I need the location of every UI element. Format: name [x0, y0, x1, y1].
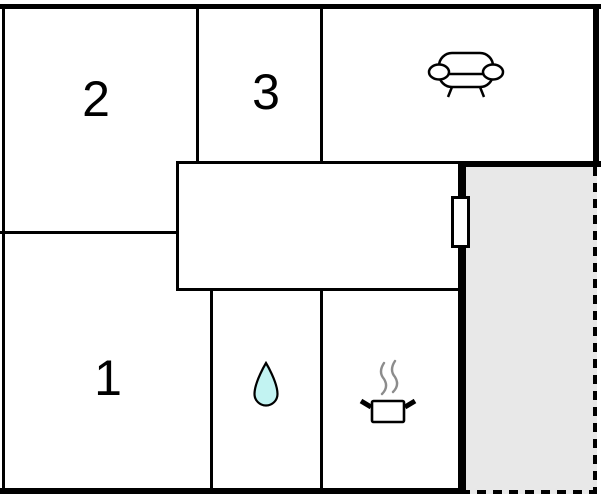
steam-line	[392, 361, 397, 392]
water-drop-shape	[255, 363, 278, 406]
floor-plan: 2 3 1	[0, 0, 601, 500]
wall-room3-living	[320, 4, 323, 163]
room-3-label: 3	[236, 65, 296, 119]
room-2-label: 2	[66, 72, 126, 126]
wall-room2-room1	[0, 231, 178, 234]
wall-outer-left	[2, 4, 5, 491]
wall-living-room-bottom	[458, 161, 601, 167]
terrace-area	[458, 161, 597, 494]
cooking-pot-icon	[357, 357, 419, 427]
wall-room1-bathroom	[210, 291, 213, 490]
room-1-label: 1	[78, 351, 138, 405]
terrace-dashed-border-right	[593, 167, 597, 494]
wall-bathroom-kitchen	[320, 291, 323, 490]
hallway-area	[176, 161, 466, 291]
wall-outer-right	[593, 4, 599, 167]
window-marker	[451, 196, 470, 248]
wall-room2-room3	[196, 4, 199, 163]
wall-outer-top	[0, 4, 601, 9]
water-drop-icon	[252, 361, 280, 411]
sofa-icon	[427, 50, 505, 100]
steam-line	[381, 363, 386, 394]
terrace-dashed-border-bottom	[461, 490, 597, 494]
wall-outer-bottom	[0, 488, 466, 494]
